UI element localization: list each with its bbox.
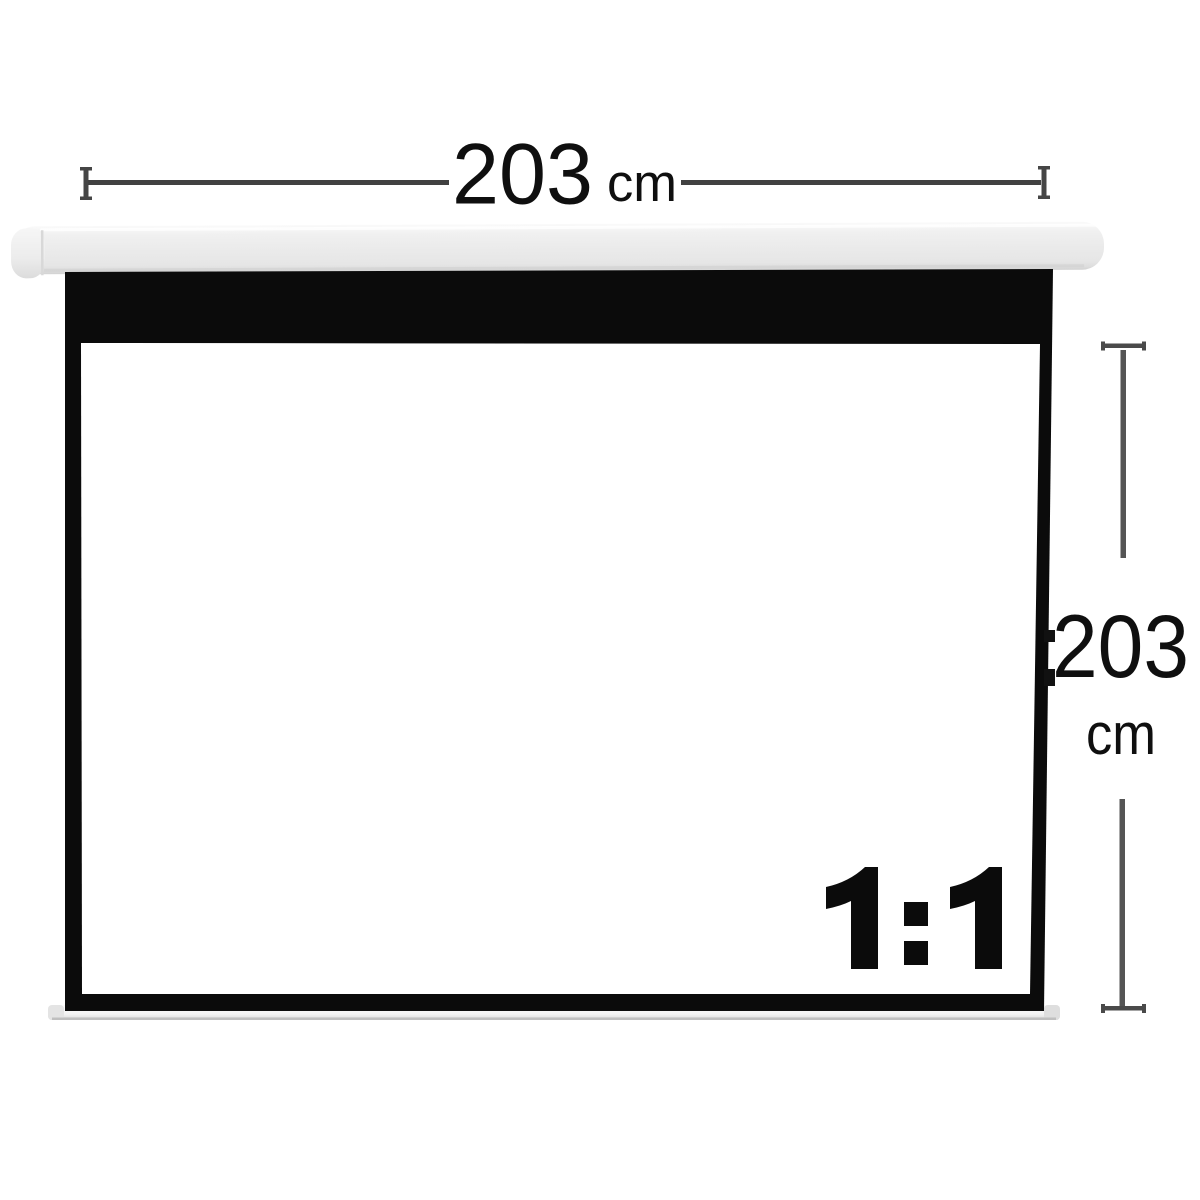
svg-text:203: 203	[1052, 596, 1189, 696]
svg-text:cm: cm	[1086, 702, 1156, 767]
svg-text:cm: cm	[607, 154, 677, 213]
svg-text:203: 203	[452, 127, 593, 223]
